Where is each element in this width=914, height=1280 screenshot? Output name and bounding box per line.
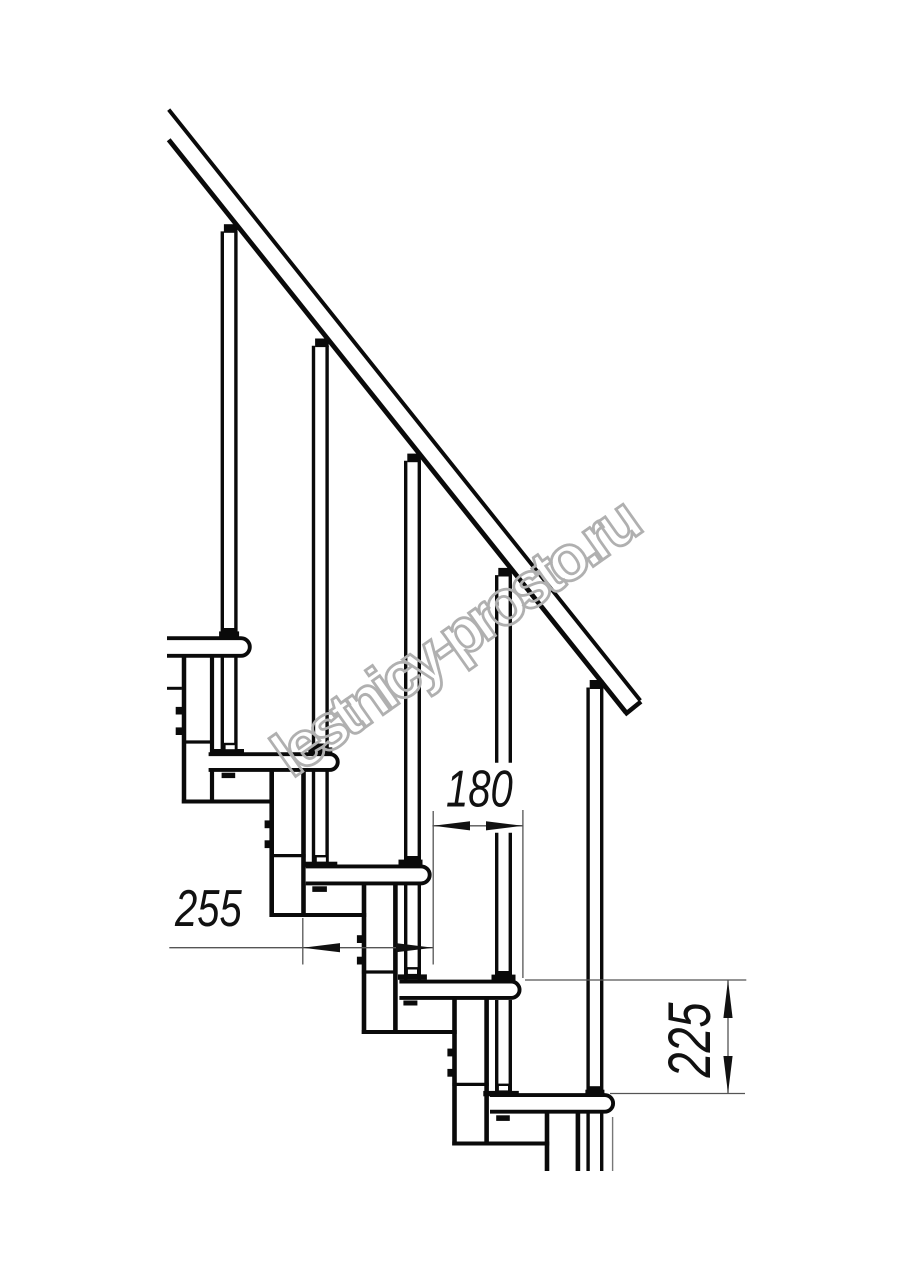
svg-text:225: 225 [657,1002,724,1078]
svg-text:255: 255 [174,879,242,937]
svg-text:180: 180 [446,759,513,817]
